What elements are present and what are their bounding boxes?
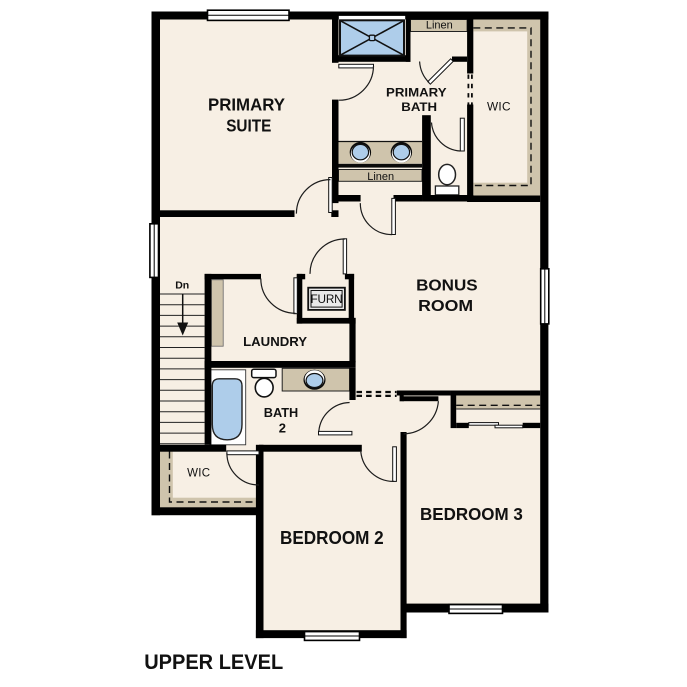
svg-text:BATH: BATH <box>264 405 298 420</box>
svg-text:UPPER LEVEL: UPPER LEVEL <box>144 649 283 674</box>
svg-text:FURN: FURN <box>311 292 343 306</box>
svg-text:ROOM: ROOM <box>418 298 473 315</box>
svg-text:Linen: Linen <box>367 171 394 183</box>
svg-text:2: 2 <box>279 420 286 435</box>
svg-text:PRIMARY: PRIMARY <box>386 86 447 100</box>
svg-text:SUITE: SUITE <box>226 115 271 135</box>
svg-text:BONUS: BONUS <box>416 277 478 294</box>
svg-text:LAUNDRY: LAUNDRY <box>243 334 307 349</box>
svg-text:Linen: Linen <box>426 20 453 32</box>
svg-text:BEDROOM 2: BEDROOM 2 <box>280 527 384 548</box>
svg-text:PRIMARY: PRIMARY <box>208 95 285 115</box>
svg-text:WIC: WIC <box>187 468 210 480</box>
svg-text:WIC: WIC <box>487 100 511 114</box>
svg-text:Dn: Dn <box>175 279 189 291</box>
svg-text:BATH: BATH <box>401 100 437 114</box>
svg-text:BEDROOM 3: BEDROOM 3 <box>420 504 523 524</box>
